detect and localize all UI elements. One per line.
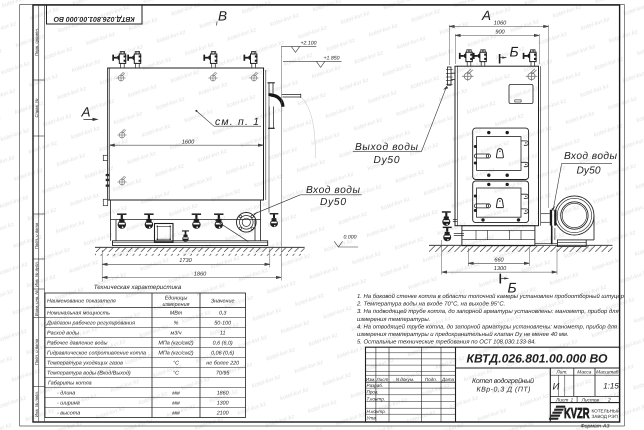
svg-text:измерения температуры.: измерения температуры. (357, 317, 430, 323)
svg-text:Перв. примен.: Перв. примен. (34, 28, 39, 56)
svg-text:Диапазон рабочего регулировани: Диапазон рабочего регулирования (46, 321, 135, 327)
svg-text:Б: Б (510, 43, 519, 59)
svg-text:мм: мм (172, 411, 180, 417)
svg-text:1: 1 (571, 398, 574, 404)
svg-text:КВТД.026.801.00.000 ВО: КВТД.026.801.00.000 ВО (53, 15, 135, 22)
svg-text:1300: 1300 (494, 266, 507, 272)
svg-text:+2.100: +2.100 (300, 41, 316, 47)
svg-text:1860: 1860 (217, 391, 229, 397)
svg-text:Н.контр.: Н.контр. (367, 409, 386, 414)
svg-text:5. Остальные технические треб: 5. Остальные технические требования по О… (357, 339, 536, 346)
svg-text:Гидравлическое сопротивление к: Гидравлическое сопротивление котла (47, 351, 146, 357)
svg-text:1600: 1600 (182, 139, 195, 145)
svg-text:Лист: Лист (375, 377, 388, 382)
svg-text:1300: 1300 (217, 401, 229, 407)
svg-text:Единицы: Единицы (165, 296, 188, 302)
svg-text:А: А (81, 105, 91, 120)
svg-text:- длина: - длина (57, 391, 75, 397)
svg-text:Габариты котла: Габариты котла (48, 381, 92, 387)
svg-text:А: А (481, 8, 491, 23)
svg-text:N докум.: N докум. (396, 377, 415, 382)
svg-text:м3/ч: м3/ч (171, 331, 182, 337)
svg-text:КВТД.026.801.00.000 ВО: КВТД.026.801.00.000 ВО (467, 352, 609, 366)
svg-text:1. На боковой стенке котла в: 1. На боковой стенке котла в области топ… (357, 293, 625, 300)
svg-text:Формат: Формат (581, 423, 602, 429)
svg-text:Т.контр.: Т.контр. (367, 397, 386, 402)
svg-text:Наименование показателя: Наименование показателя (47, 299, 116, 305)
svg-text:Лит.: Лит. (555, 370, 567, 376)
svg-text:°С: °С (173, 371, 179, 377)
svg-text:0,3: 0,3 (219, 311, 227, 317)
svg-text:измерения температуры и предох: измерения температуры и предохранительны… (357, 331, 569, 338)
svg-text:Масштаб: Масштаб (596, 370, 619, 376)
svg-text:ЗАВОД РЭП: ЗАВОД РЭП (592, 414, 618, 419)
svg-text:- высота: - высота (57, 411, 80, 417)
svg-text:Рабочее давление воды: Рабочее давление воды (47, 341, 107, 347)
svg-text:Пров.: Пров. (367, 390, 379, 395)
svg-text:Подп.: Подп. (425, 377, 437, 382)
svg-text:+1.850: +1.850 (323, 55, 339, 61)
svg-text:660: 660 (494, 257, 504, 263)
svg-text:Техническая характеристика: Техническая характеристика (94, 284, 182, 291)
svg-text:МВт: МВт (170, 311, 183, 317)
svg-text:Дата: Дата (441, 377, 455, 382)
svg-text:2: 2 (607, 398, 611, 404)
svg-text:4. На отводящей трубе котла,: 4. На отводящей трубе котла, до запорной… (357, 323, 618, 330)
svg-text:Масса: Масса (577, 370, 592, 376)
svg-text:Dy50: Dy50 (320, 197, 346, 208)
svg-text:Dy50: Dy50 (374, 155, 400, 166)
svg-text:Лист: Лист (555, 398, 568, 404)
svg-text:1860: 1860 (194, 271, 207, 277)
svg-text:Расход воды: Расход воды (47, 331, 79, 337)
svg-text:Dy50: Dy50 (577, 166, 601, 177)
svg-text:0,6 (6,0): 0,6 (6,0) (213, 341, 233, 347)
svg-text:Инв. № подл.: Инв. № подл. (34, 391, 39, 417)
svg-text:В: В (218, 9, 227, 24)
svg-text:мм: мм (172, 401, 180, 407)
svg-text:3. На подводящей трубе котла,: 3. На подводящей трубе котла, до запорно… (357, 308, 619, 315)
svg-text:Подп. и дата: Подп. и дата (34, 338, 39, 365)
svg-text:МПа (кгс/см2): МПа (кгс/см2) (158, 341, 193, 347)
svg-text:Номинальная мощность: Номинальная мощность (47, 311, 110, 317)
svg-text:- ширина: - ширина (57, 401, 80, 407)
svg-text:Температура воды (Вход/Выход): Температура воды (Вход/Выход) (47, 371, 131, 377)
svg-text:Изм.: Изм. (366, 377, 376, 382)
svg-text:Разраб.: Разраб. (367, 383, 384, 388)
svg-text:Листов: Листов (581, 398, 600, 404)
svg-text:0,06 (0,6): 0,06 (0,6) (211, 351, 234, 357)
svg-text:КОТЕЛЬНЫЙ: КОТЕЛЬНЫЙ (592, 408, 621, 414)
svg-text:Взам. инв. №: Взам. инв. № (34, 290, 39, 316)
svg-text:1060: 1060 (494, 20, 507, 26)
svg-text:KVZR: KVZR (564, 406, 590, 422)
svg-text:КВр-0,3 Д (ПТ): КВр-0,3 Д (ПТ) (477, 385, 531, 393)
svg-text:2100: 2100 (216, 411, 229, 417)
svg-text:Котел водогрейный: Котел водогрейный (472, 377, 534, 385)
svg-text:Справ. №: Справ. № (34, 98, 39, 117)
svg-text:11: 11 (220, 331, 226, 337)
svg-text:2. Температура воды на входе: 2. Температура воды на входе 70°С, на вы… (356, 301, 505, 308)
svg-text:Температура уходящих газов: Температура уходящих газов (47, 361, 123, 367)
svg-text:70/95: 70/95 (216, 371, 230, 377)
svg-text:Вход воды: Вход воды (564, 151, 618, 162)
svg-text:А3: А3 (602, 423, 609, 429)
svg-text:Инв. № дубл.: Инв. № дубл. (34, 261, 39, 287)
svg-text:Утв.: Утв. (367, 416, 377, 421)
svg-text:0.000: 0.000 (344, 235, 357, 241)
svg-text:мм: мм (172, 391, 180, 397)
svg-text:900: 900 (495, 29, 505, 35)
svg-text:И: И (553, 382, 560, 393)
svg-text:Вход воды: Вход воды (306, 185, 361, 196)
svg-text:не более 220: не более 220 (206, 361, 239, 367)
svg-text:1:15: 1:15 (603, 382, 619, 391)
svg-text:°С: °С (173, 361, 179, 367)
svg-text:%: % (174, 321, 179, 327)
svg-text:измерения: измерения (163, 302, 190, 308)
svg-text:МПа (кгс/см2): МПа (кгс/см2) (158, 351, 193, 357)
svg-text:1730: 1730 (179, 258, 192, 264)
svg-text:Значение: Значение (211, 299, 235, 305)
svg-text:50-100: 50-100 (214, 321, 231, 327)
svg-text:Подп. и дата: Подп. и дата (34, 222, 39, 249)
